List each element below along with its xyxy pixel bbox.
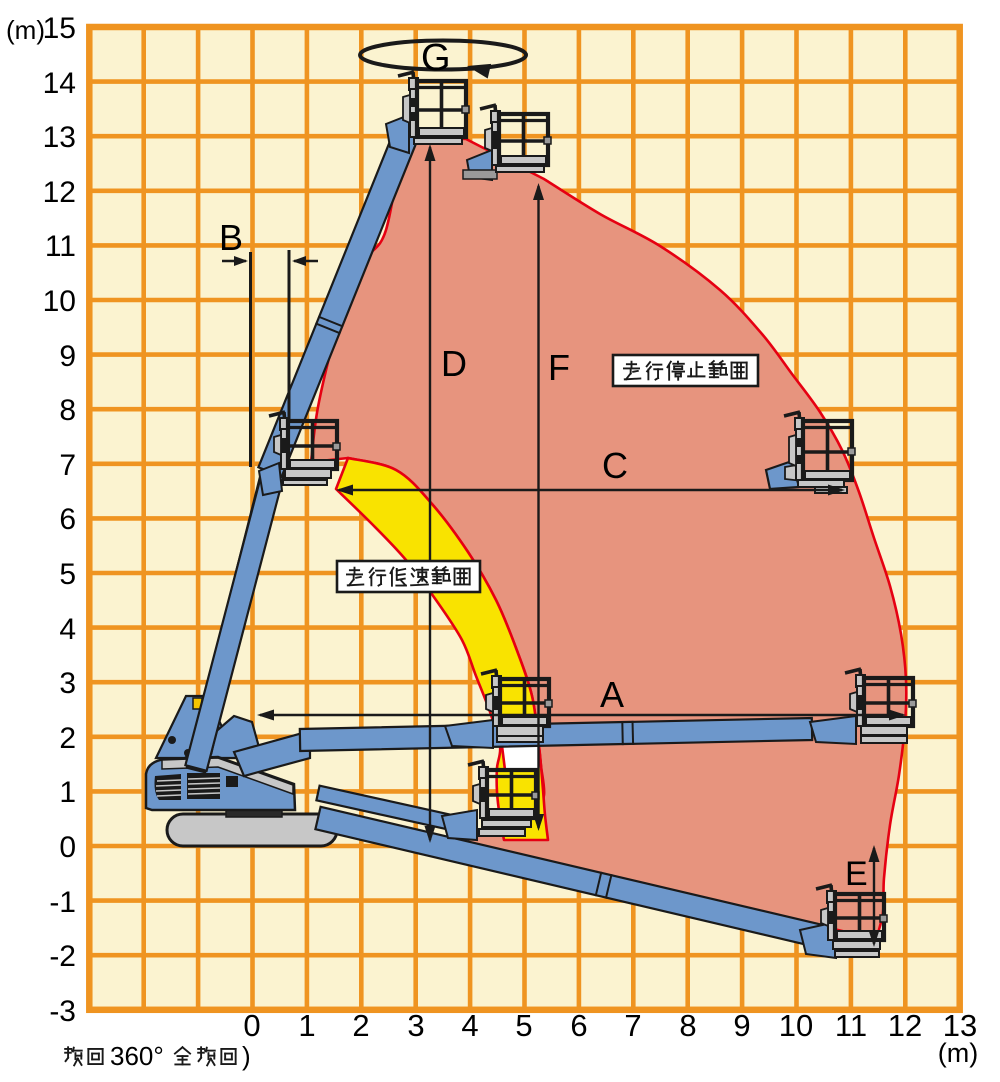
svg-text:9: 9 xyxy=(59,340,76,373)
svg-text:6: 6 xyxy=(570,1008,587,1043)
svg-text:9: 9 xyxy=(733,1008,750,1043)
svg-text:2: 2 xyxy=(352,1008,369,1043)
svg-text:4: 4 xyxy=(59,613,76,646)
svg-text:7: 7 xyxy=(59,449,76,482)
svg-text:0: 0 xyxy=(243,1008,260,1043)
svg-text:B: B xyxy=(219,217,243,258)
svg-text:E: E xyxy=(845,855,868,893)
svg-text:5: 5 xyxy=(515,1008,532,1043)
svg-text:12: 12 xyxy=(43,176,76,209)
svg-text:-3: -3 xyxy=(49,995,76,1028)
svg-text:360°: 360° xyxy=(110,1041,164,1071)
svg-text:11: 11 xyxy=(835,1008,867,1043)
svg-text:7: 7 xyxy=(624,1008,641,1043)
svg-text:(m): (m) xyxy=(938,1038,978,1068)
svg-text:4: 4 xyxy=(461,1008,478,1043)
svg-text:2: 2 xyxy=(59,722,76,755)
svg-text:8: 8 xyxy=(679,1008,696,1043)
svg-text:D: D xyxy=(441,343,467,384)
svg-text:8: 8 xyxy=(59,394,76,427)
svg-text:10: 10 xyxy=(43,285,76,318)
svg-text:11: 11 xyxy=(45,230,76,263)
svg-text:-1: -1 xyxy=(49,886,76,919)
svg-text:10: 10 xyxy=(779,1008,813,1043)
svg-text:0: 0 xyxy=(59,831,76,864)
svg-text:G: G xyxy=(421,37,451,79)
svg-text:5: 5 xyxy=(59,558,76,591)
svg-text:C: C xyxy=(602,445,628,486)
svg-text:F: F xyxy=(548,347,570,388)
svg-text:12: 12 xyxy=(888,1008,922,1043)
svg-text:13: 13 xyxy=(43,121,76,154)
svg-text:): ) xyxy=(242,1041,251,1071)
svg-text:14: 14 xyxy=(43,67,76,100)
svg-text:1: 1 xyxy=(298,1008,315,1043)
svg-text:A: A xyxy=(600,674,624,715)
svg-text:-2: -2 xyxy=(49,940,76,973)
svg-text:1: 1 xyxy=(59,776,76,809)
svg-text:15: 15 xyxy=(43,12,76,45)
svg-text:3: 3 xyxy=(407,1008,424,1043)
svg-text:6: 6 xyxy=(59,503,76,536)
svg-text:3: 3 xyxy=(59,667,76,700)
svg-text:(m): (m) xyxy=(6,15,45,45)
